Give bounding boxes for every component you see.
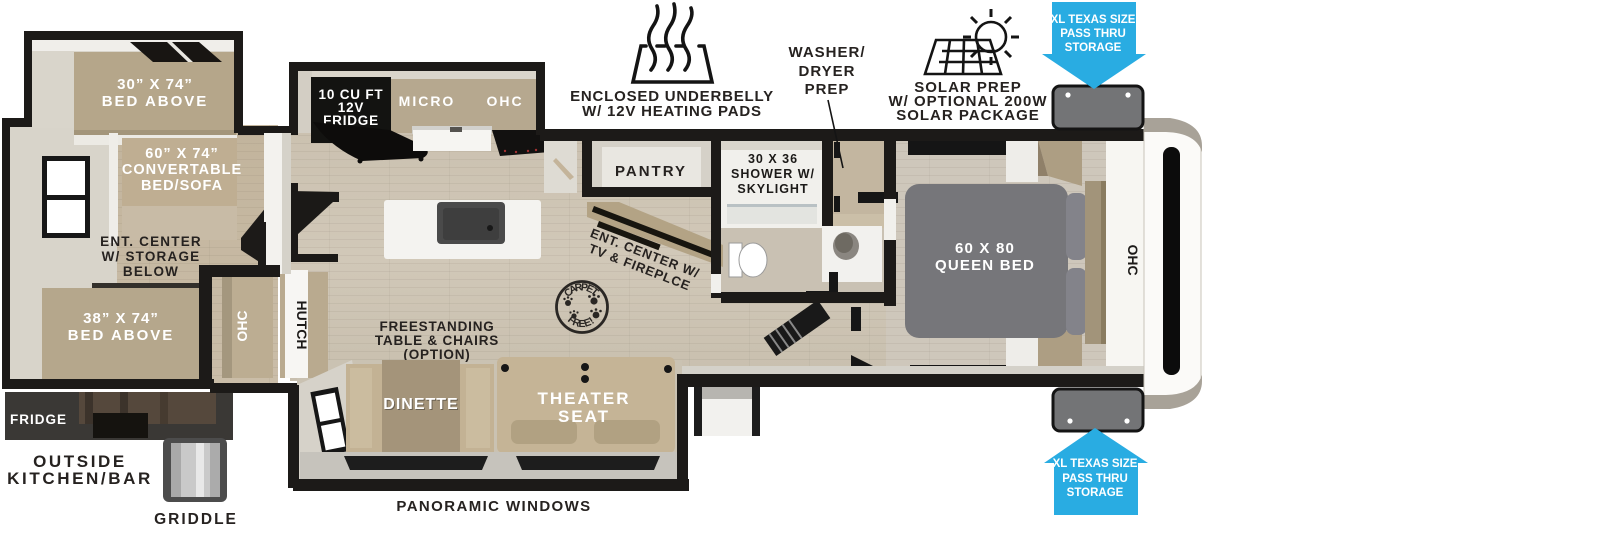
svg-text:38” X 74”: 38” X 74”	[83, 310, 159, 327]
svg-text:(OPTION): (OPTION)	[403, 347, 470, 362]
svg-text:SHOWER W/: SHOWER W/	[731, 167, 815, 181]
svg-text:PANTRY: PANTRY	[615, 163, 687, 180]
svg-text:BED/SOFA: BED/SOFA	[141, 178, 223, 194]
svg-text:SEAT: SEAT	[558, 407, 610, 426]
svg-text:30 X 36: 30 X 36	[748, 152, 798, 166]
svg-text:OHC: OHC	[234, 310, 250, 341]
svg-text:CONVERTABLE: CONVERTABLE	[122, 162, 242, 178]
svg-text:MICRO: MICRO	[399, 93, 456, 109]
svg-text:TABLE & CHAIRS: TABLE & CHAIRS	[375, 333, 499, 348]
svg-text:ENT. CENTER: ENT. CENTER	[100, 234, 202, 249]
svg-text:60” X 74”: 60” X 74”	[145, 146, 219, 162]
svg-text:THEATER: THEATER	[537, 389, 630, 408]
svg-text:STORAGE: STORAGE	[1065, 42, 1122, 54]
svg-text:XL TEXAS SIZE: XL TEXAS SIZE	[1051, 14, 1136, 26]
svg-text:BED ABOVE: BED ABOVE	[68, 327, 175, 344]
svg-text:PASS THRU: PASS THRU	[1062, 473, 1128, 485]
svg-text:KITCHEN/BAR: KITCHEN/BAR	[7, 469, 153, 488]
svg-text:XL TEXAS SIZE: XL TEXAS SIZE	[1053, 458, 1138, 470]
svg-text:W/ STORAGE: W/ STORAGE	[102, 249, 201, 264]
svg-text:DINETTE: DINETTE	[383, 396, 458, 413]
svg-text:QUEEN BED: QUEEN BED	[935, 257, 1035, 274]
svg-text:PREP: PREP	[805, 81, 850, 98]
svg-text:BED ABOVE: BED ABOVE	[102, 93, 209, 110]
svg-text:STORAGE: STORAGE	[1067, 487, 1124, 499]
svg-text:HUTCH: HUTCH	[294, 301, 310, 350]
svg-text:60 X 80: 60 X 80	[955, 240, 1015, 257]
svg-text:BELOW: BELOW	[123, 264, 179, 279]
svg-text:WASHER/: WASHER/	[788, 44, 865, 61]
svg-text:PASS THRU: PASS THRU	[1060, 28, 1126, 40]
svg-text:GRIDDLE: GRIDDLE	[154, 511, 238, 528]
svg-text:FRIDGE: FRIDGE	[10, 412, 67, 427]
svg-text:DRYER: DRYER	[799, 63, 856, 80]
svg-text:OHC: OHC	[486, 93, 523, 109]
svg-text:PANORAMIC WINDOWS: PANORAMIC WINDOWS	[396, 498, 591, 515]
svg-text:W/ 12V HEATING PADS: W/ 12V HEATING PADS	[582, 103, 762, 120]
svg-text:30” X 74”: 30” X 74”	[117, 76, 193, 93]
svg-text:FREESTANDING: FREESTANDING	[379, 319, 494, 334]
svg-text:OHC: OHC	[1125, 244, 1141, 275]
svg-text:SOLAR PACKAGE: SOLAR PACKAGE	[896, 107, 1040, 124]
svg-text:SKYLIGHT: SKYLIGHT	[737, 182, 808, 196]
